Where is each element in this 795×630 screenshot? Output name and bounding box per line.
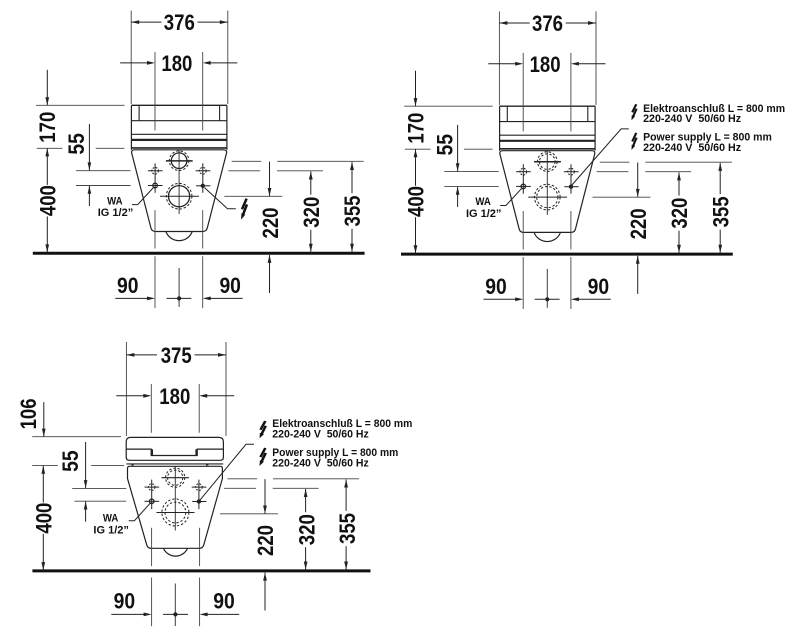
svg-text:220: 220 bbox=[253, 525, 278, 556]
svg-text:376: 376 bbox=[164, 10, 195, 35]
svg-text:220: 220 bbox=[258, 208, 283, 239]
svg-text:90: 90 bbox=[588, 274, 610, 299]
svg-text:220: 220 bbox=[626, 208, 651, 239]
svg-text:320: 320 bbox=[294, 514, 319, 545]
svg-text:320: 320 bbox=[299, 197, 324, 228]
svg-text:IG 1/2”: IG 1/2” bbox=[466, 208, 502, 220]
svg-text:170: 170 bbox=[403, 113, 428, 144]
svg-text:90: 90 bbox=[219, 273, 241, 298]
svg-text:55: 55 bbox=[64, 133, 89, 155]
svg-text:170: 170 bbox=[35, 112, 60, 143]
svg-text:106: 106 bbox=[16, 398, 41, 429]
svg-text:355: 355 bbox=[708, 196, 733, 227]
svg-text:WA: WA bbox=[103, 513, 119, 525]
svg-text:180: 180 bbox=[161, 51, 192, 76]
svg-text:400: 400 bbox=[31, 503, 56, 534]
svg-text:320: 320 bbox=[667, 198, 692, 229]
svg-text:WA: WA bbox=[475, 196, 491, 208]
svg-text:IG 1/2”: IG 1/2” bbox=[98, 207, 134, 219]
svg-text:180: 180 bbox=[159, 384, 190, 409]
svg-text:400: 400 bbox=[35, 185, 60, 216]
svg-text:90: 90 bbox=[485, 274, 507, 299]
svg-text:220-240 V 50/60 Hz: 220-240 V 50/60 Hz bbox=[643, 113, 741, 125]
svg-text:220-240 V 50/60 Hz: 220-240 V 50/60 Hz bbox=[643, 142, 741, 154]
svg-text:90: 90 bbox=[117, 273, 139, 298]
svg-text:IG 1/2”: IG 1/2” bbox=[93, 524, 129, 536]
svg-text:375: 375 bbox=[161, 343, 192, 368]
svg-text:WA: WA bbox=[107, 195, 123, 207]
svg-text:355: 355 bbox=[335, 513, 360, 544]
svg-text:400: 400 bbox=[404, 186, 429, 217]
svg-text:355: 355 bbox=[340, 196, 365, 227]
svg-text:90: 90 bbox=[114, 588, 136, 613]
svg-text:376: 376 bbox=[532, 11, 563, 36]
svg-text:220-240 V 50/60 Hz: 220-240 V 50/60 Hz bbox=[272, 429, 369, 441]
svg-text:55: 55 bbox=[432, 134, 457, 156]
svg-text:90: 90 bbox=[213, 588, 235, 613]
svg-text:55: 55 bbox=[58, 450, 83, 472]
svg-text:180: 180 bbox=[530, 52, 561, 77]
svg-text:220-240 V 50/60 Hz: 220-240 V 50/60 Hz bbox=[272, 458, 369, 470]
